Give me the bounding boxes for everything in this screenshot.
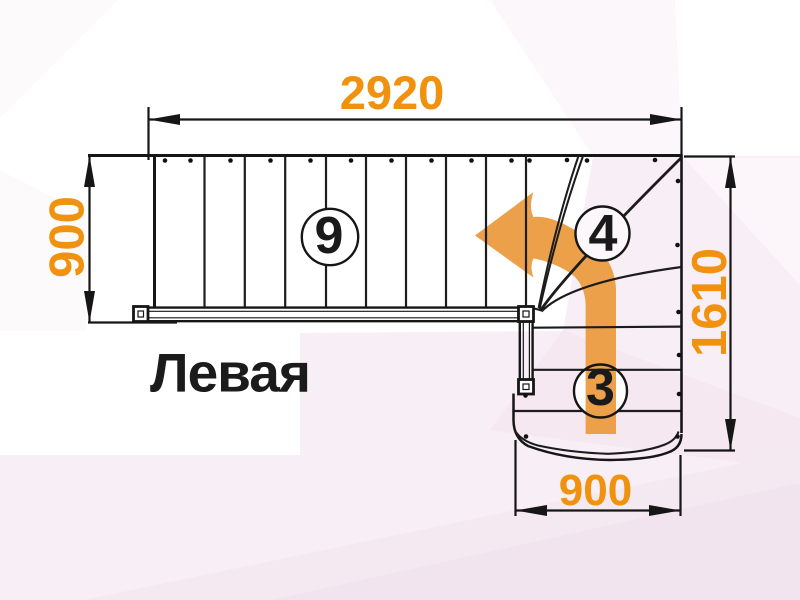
- svg-text:9: 9: [315, 207, 344, 265]
- svg-text:3: 3: [586, 359, 615, 417]
- svg-text:4: 4: [589, 205, 618, 263]
- svg-text:900: 900: [41, 196, 95, 278]
- svg-text:900: 900: [559, 466, 632, 515]
- svg-text:2920: 2920: [340, 66, 445, 119]
- svg-text:Левая: Левая: [150, 342, 310, 404]
- svg-text:1610: 1610: [683, 248, 737, 357]
